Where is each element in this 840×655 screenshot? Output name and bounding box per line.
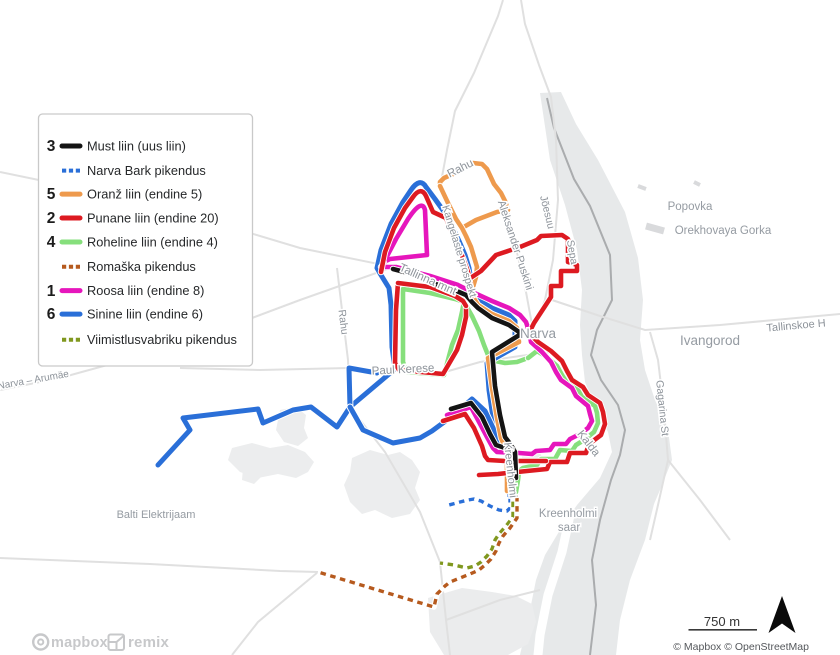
svg-text:Sinine liin (endine 6): Sinine liin (endine 6) [87, 307, 203, 322]
svg-text:Viimistlusvabriku pikendus: Viimistlusvabriku pikendus [87, 332, 237, 347]
svg-text:6: 6 [47, 306, 56, 323]
svg-text:Ivangorod: Ivangorod [680, 333, 740, 348]
svg-text:5: 5 [47, 186, 56, 203]
svg-text:saar: saar [558, 522, 581, 534]
svg-text:2: 2 [47, 210, 56, 227]
svg-text:750 m: 750 m [704, 614, 740, 629]
svg-text:1: 1 [47, 283, 56, 300]
svg-text:Punane liin (endine 20): Punane liin (endine 20) [87, 211, 219, 226]
svg-text:remix: remix [128, 634, 169, 651]
svg-text:Popovka: Popovka [668, 201, 713, 213]
svg-text:Roheline liin (endine 4): Roheline liin (endine 4) [87, 235, 218, 250]
svg-text:Romaška pikendus: Romaška pikendus [87, 259, 196, 274]
svg-text:mapbox: mapbox [51, 635, 108, 651]
svg-text:Narva: Narva [520, 326, 557, 341]
svg-text:Kreenholmi: Kreenholmi [539, 508, 597, 520]
svg-text:Orekhovaya Gorka: Orekhovaya Gorka [675, 225, 772, 237]
svg-text:Must liin (uus liin): Must liin (uus liin) [87, 139, 186, 154]
svg-text:Narva Bark pikendus: Narva Bark pikendus [87, 163, 206, 178]
svg-text:4: 4 [47, 234, 56, 251]
svg-text:Roosa liin (endine 8): Roosa liin (endine 8) [87, 283, 204, 298]
svg-text:3: 3 [47, 138, 56, 155]
svg-text:© Mapbox © OpenStreetMap: © Mapbox © OpenStreetMap [673, 641, 809, 653]
svg-text:Balti Elektrijaam: Balti Elektrijaam [117, 509, 196, 521]
svg-text:Oranž liin (endine 5): Oranž liin (endine 5) [87, 187, 202, 202]
